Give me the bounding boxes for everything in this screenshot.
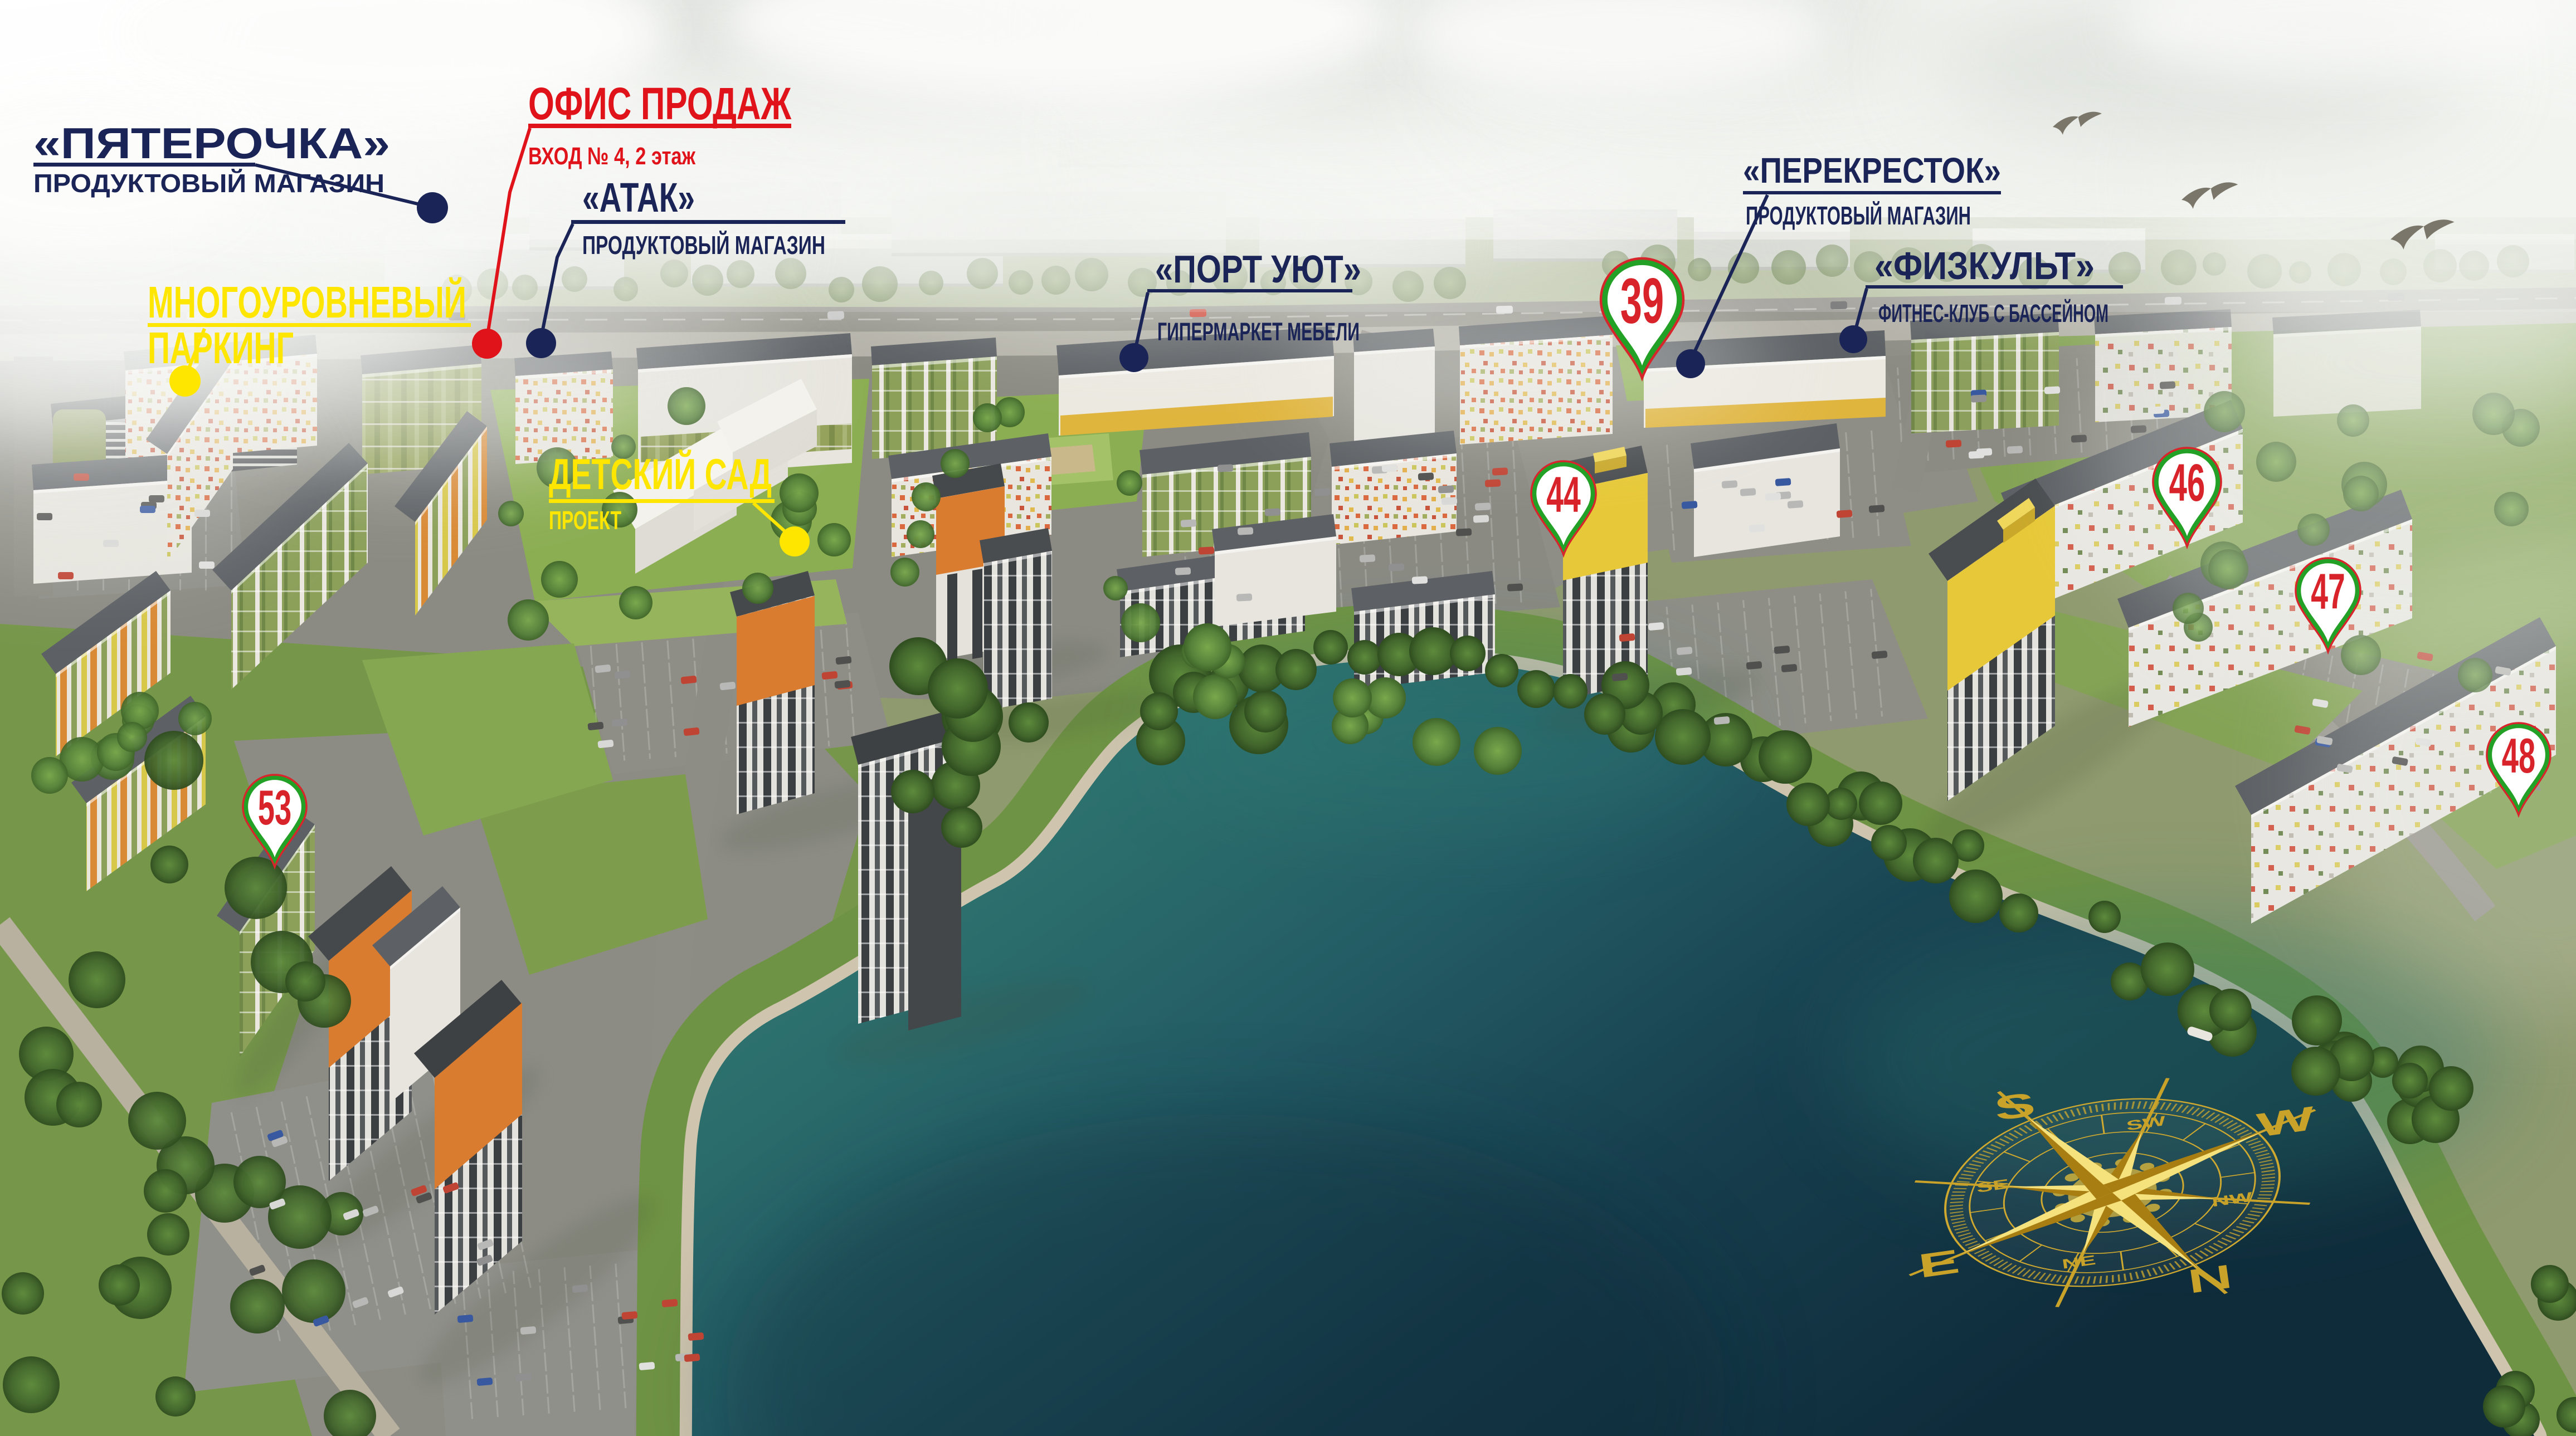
svg-text:ОФИС ПРОДАЖ: ОФИС ПРОДАЖ <box>528 79 792 129</box>
svg-text:«ПОРТ УЮТ»: «ПОРТ УЮТ» <box>1155 247 1361 291</box>
svg-text:53: 53 <box>258 780 291 835</box>
svg-text:ПРОДУКТОВЫЙ МАГАЗИН: ПРОДУКТОВЫЙ МАГАЗИН <box>582 231 825 260</box>
svg-text:«ПЕРЕКРЕСТОК»: «ПЕРЕКРЕСТОК» <box>1743 150 2001 191</box>
svg-text:46: 46 <box>2169 453 2205 512</box>
svg-text:ФИТНЕС-КЛУБ С БАССЕЙНОМ: ФИТНЕС-КЛУБ С БАССЕЙНОМ <box>1878 299 2108 328</box>
svg-text:S: S <box>1992 1085 2038 1128</box>
svg-text:«ПЯТЕРОЧКА»: «ПЯТЕРОЧКА» <box>33 119 390 168</box>
svg-text:ПРОЕКТ: ПРОЕКТ <box>549 506 621 535</box>
svg-text:ГИПЕРМАРКЕТ МЕБЕЛИ: ГИПЕРМАРКЕТ МЕБЕЛИ <box>1157 318 1360 346</box>
svg-text:N: N <box>2185 1257 2234 1300</box>
svg-text:«ФИЗКУЛЬТ»: «ФИЗКУЛЬТ» <box>1874 244 2095 287</box>
svg-text:48: 48 <box>2502 728 2535 783</box>
svg-text:ПРОДУКТОВЫЙ МАГАЗИН: ПРОДУКТОВЫЙ МАГАЗИН <box>1746 201 1971 230</box>
svg-text:ДЕТСКИЙ САД: ДЕТСКИЙ САД <box>549 450 772 499</box>
svg-text:ВХОД № 4, 2 этаж: ВХОД № 4, 2 этаж <box>528 143 696 170</box>
svg-text:47: 47 <box>2311 564 2345 619</box>
svg-text:39: 39 <box>1620 265 1664 336</box>
svg-text:МНОГОУРОВНЕВЫЙ: МНОГОУРОВНЕВЫЙ <box>148 277 466 327</box>
svg-text:44: 44 <box>1546 467 1580 522</box>
svg-text:«АТАК»: «АТАК» <box>582 174 695 221</box>
svg-text:E: E <box>1916 1242 1962 1285</box>
svg-text:ПАРКИНГ: ПАРКИНГ <box>148 323 294 373</box>
